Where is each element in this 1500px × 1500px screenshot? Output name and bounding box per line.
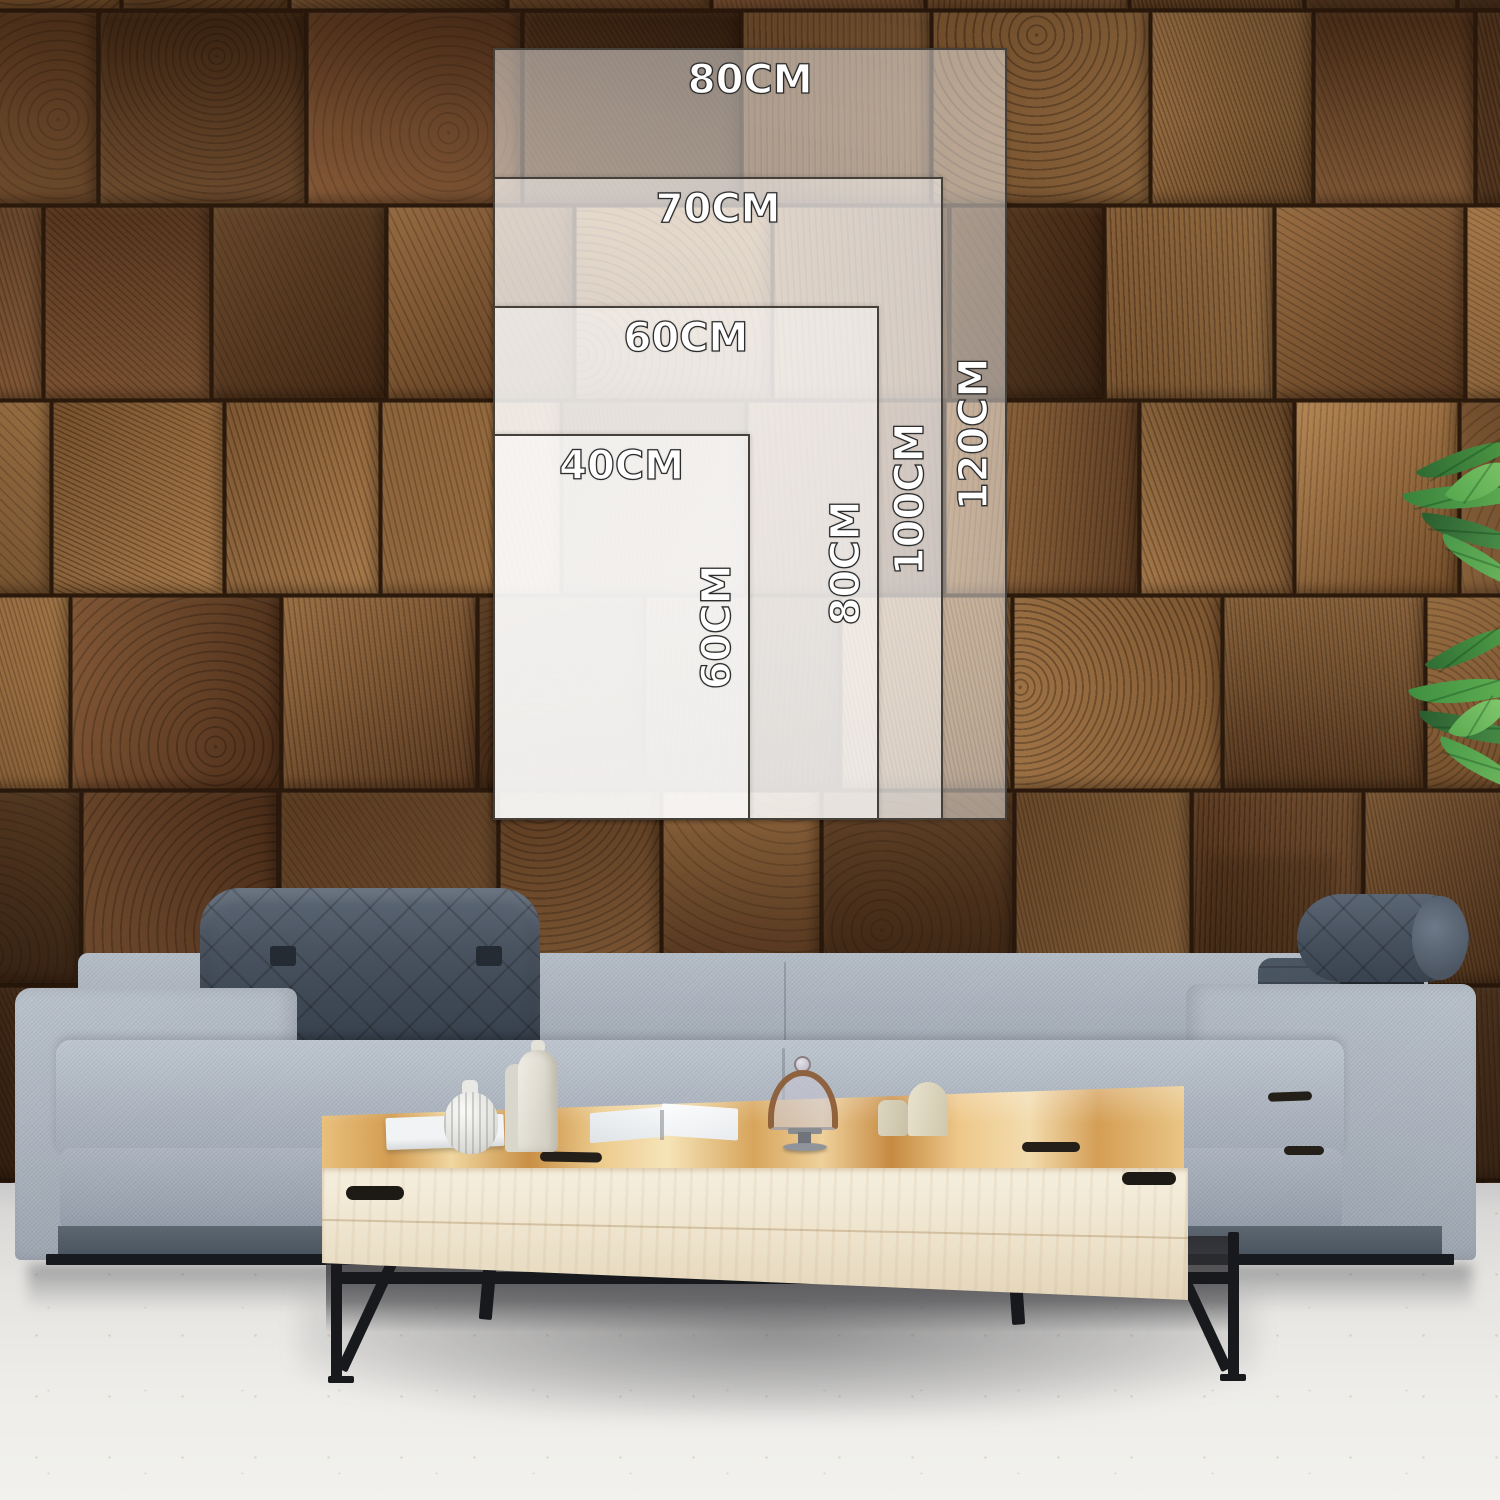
wood-tile xyxy=(382,402,560,594)
wood-tile xyxy=(524,12,740,204)
wood-tile xyxy=(933,12,1149,204)
wood-tile xyxy=(951,207,1103,399)
wood-tile xyxy=(1306,0,1456,9)
wood-tile xyxy=(100,12,305,204)
wood-tile xyxy=(283,597,476,789)
table-handle-right xyxy=(1122,1172,1176,1185)
table-top-slot-2 xyxy=(1022,1142,1080,1152)
wood-tile xyxy=(646,597,839,789)
wood-tile xyxy=(1014,597,1221,789)
wood-tile xyxy=(563,402,745,594)
open-book-right-page xyxy=(662,1103,738,1140)
table-leg-right-outer xyxy=(1228,1232,1239,1378)
wood-tile xyxy=(0,597,69,789)
wood-tile xyxy=(123,0,288,9)
headrest-clip-left xyxy=(270,946,296,966)
wood-tile xyxy=(0,792,80,984)
wood-tile xyxy=(0,0,120,9)
wood-tile xyxy=(748,402,943,594)
wood-tile xyxy=(291,0,506,9)
wood-tile xyxy=(0,402,50,594)
table-foot-left xyxy=(328,1376,354,1383)
wood-tile xyxy=(72,597,280,789)
wood-tile xyxy=(927,0,1128,9)
wood-tile xyxy=(509,0,709,9)
wood-tile xyxy=(842,597,1011,789)
headrest-clip-right xyxy=(476,946,502,966)
wood-tile xyxy=(713,0,924,9)
open-book-spine xyxy=(660,1110,664,1140)
sofa-back-seam xyxy=(784,962,786,1050)
table-top-slot-1 xyxy=(540,1151,602,1162)
wood-tile xyxy=(743,12,930,204)
product-size-guide-image: 80CM 120CM 70CM 100CM 60CM 80CM 40CM 60C… xyxy=(0,0,1500,1500)
wood-tile xyxy=(308,12,521,204)
wood-tile xyxy=(0,12,97,204)
wood-tile xyxy=(45,207,210,399)
wood-tile xyxy=(1152,12,1312,204)
wood-tile xyxy=(946,402,1138,594)
wood-tile xyxy=(1131,0,1303,9)
wood-tile xyxy=(0,207,42,399)
cream-dome xyxy=(908,1082,948,1136)
wood-tile xyxy=(576,207,772,399)
wood-tile xyxy=(1106,207,1273,399)
wood-tile xyxy=(213,207,385,399)
cloche-foot xyxy=(783,1143,827,1151)
wood-tile xyxy=(1315,12,1474,204)
table-top-slot-4 xyxy=(1284,1146,1324,1155)
wood-tile xyxy=(1276,207,1465,399)
wood-tile xyxy=(1224,597,1424,789)
table-foot-right xyxy=(1220,1374,1246,1381)
wood-tile xyxy=(1477,12,1500,204)
bottle-vase-tall xyxy=(518,1050,558,1152)
table-handle-left xyxy=(346,1186,404,1200)
wood-tile xyxy=(1467,207,1500,399)
bolster-end-cap xyxy=(1412,896,1468,980)
wood-tile xyxy=(388,207,573,399)
table-top-slot-3 xyxy=(1268,1091,1312,1102)
wood-tile xyxy=(479,597,643,789)
wood-tile xyxy=(774,207,948,399)
wood-tile xyxy=(1141,402,1293,594)
wood-tile xyxy=(226,402,379,594)
wood-tile xyxy=(53,402,223,594)
cream-cylinder xyxy=(878,1100,908,1136)
wood-tile xyxy=(1459,0,1500,9)
gourd-vase xyxy=(444,1092,498,1154)
